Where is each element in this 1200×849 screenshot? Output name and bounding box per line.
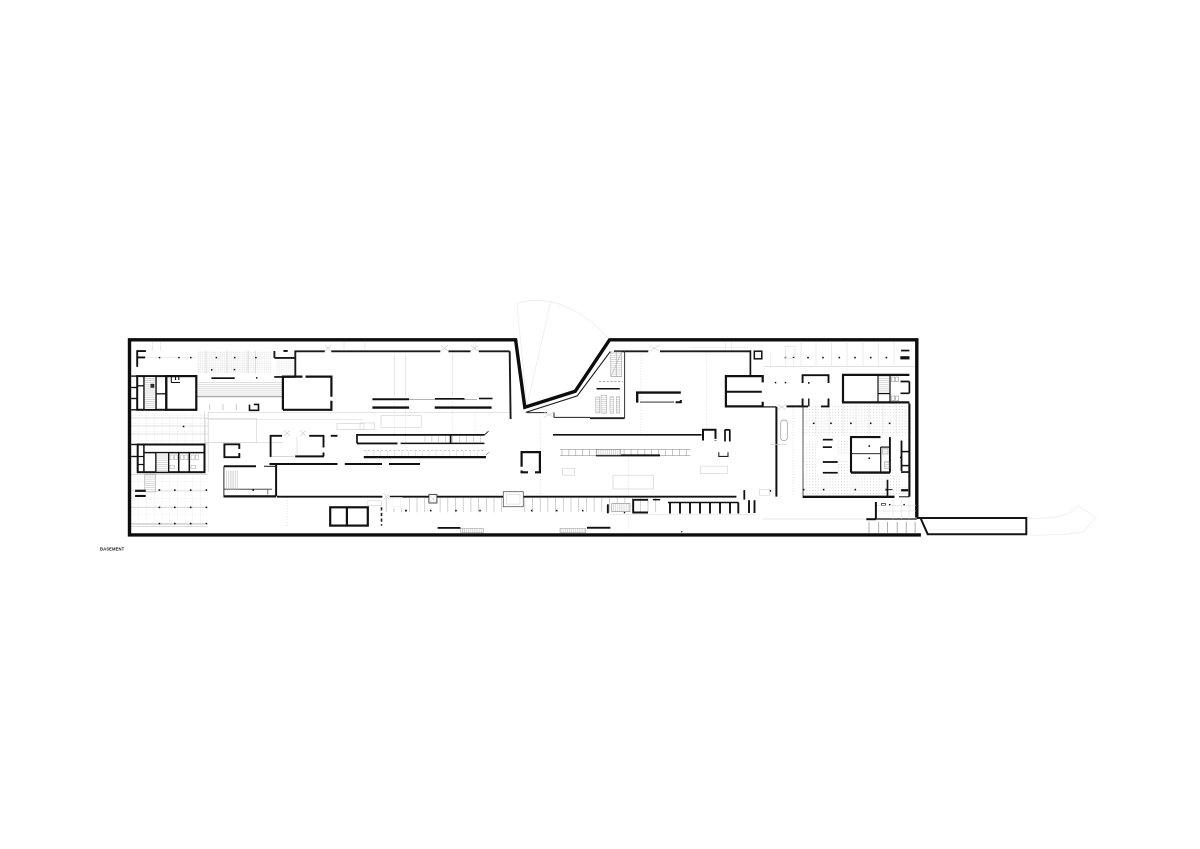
svg-text:BASEMENT: BASEMENT (100, 546, 125, 551)
